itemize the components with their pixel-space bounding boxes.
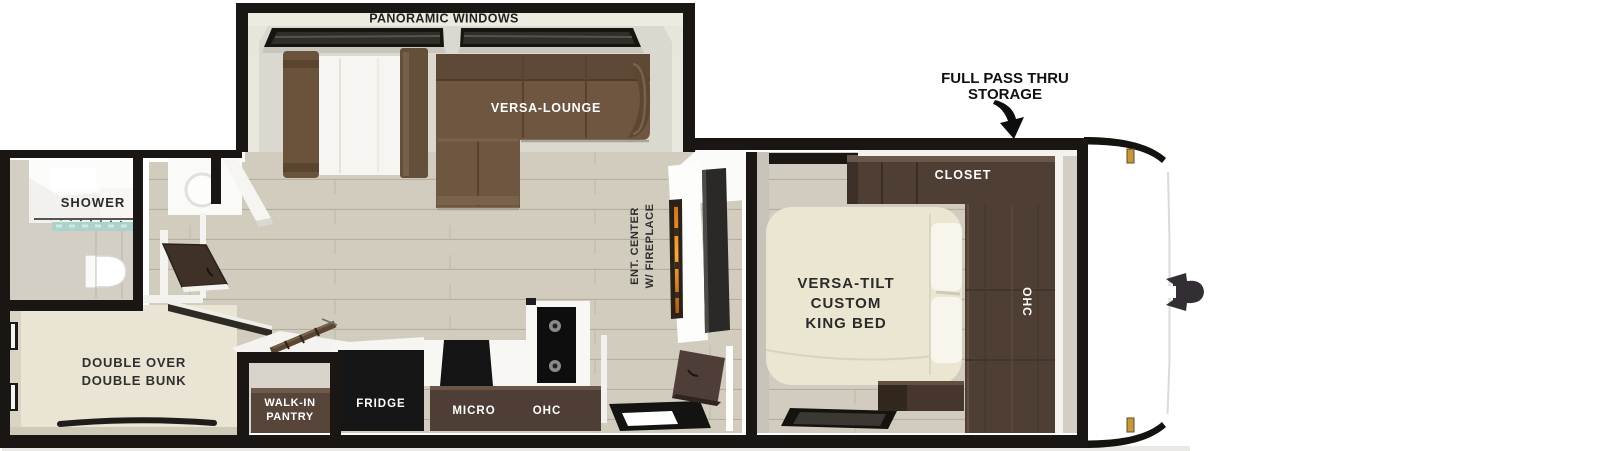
svg-text:DOUBLE BUNK: DOUBLE BUNK bbox=[82, 373, 187, 388]
svg-text:VERSA-TILT: VERSA-TILT bbox=[797, 275, 894, 292]
svg-text:OHC: OHC bbox=[1020, 287, 1034, 317]
svg-text:PANORAMIC WINDOWS: PANORAMIC WINDOWS bbox=[369, 12, 519, 26]
svg-text:VERSA-LOUNGE: VERSA-LOUNGE bbox=[491, 101, 601, 115]
svg-text:STORAGE: STORAGE bbox=[968, 86, 1042, 103]
svg-text:W/ FIREPLACE: W/ FIREPLACE bbox=[644, 204, 656, 289]
svg-text:KING BED: KING BED bbox=[805, 315, 886, 332]
svg-text:SHOWER: SHOWER bbox=[61, 195, 126, 210]
svg-text:CLOSET: CLOSET bbox=[935, 168, 992, 182]
svg-text:FRIDGE: FRIDGE bbox=[356, 398, 405, 410]
svg-text:DOUBLE OVER: DOUBLE OVER bbox=[82, 355, 186, 370]
svg-text:OHC: OHC bbox=[533, 405, 562, 417]
svg-text:CUSTOM: CUSTOM bbox=[811, 295, 882, 312]
svg-text:ENT. CENTER: ENT. CENTER bbox=[629, 207, 641, 285]
svg-text:PANTRY: PANTRY bbox=[266, 411, 314, 423]
svg-text:FULL PASS THRU: FULL PASS THRU bbox=[941, 70, 1069, 87]
svg-text:WALK-IN: WALK-IN bbox=[264, 397, 315, 409]
svg-text:MICRO: MICRO bbox=[452, 405, 495, 417]
